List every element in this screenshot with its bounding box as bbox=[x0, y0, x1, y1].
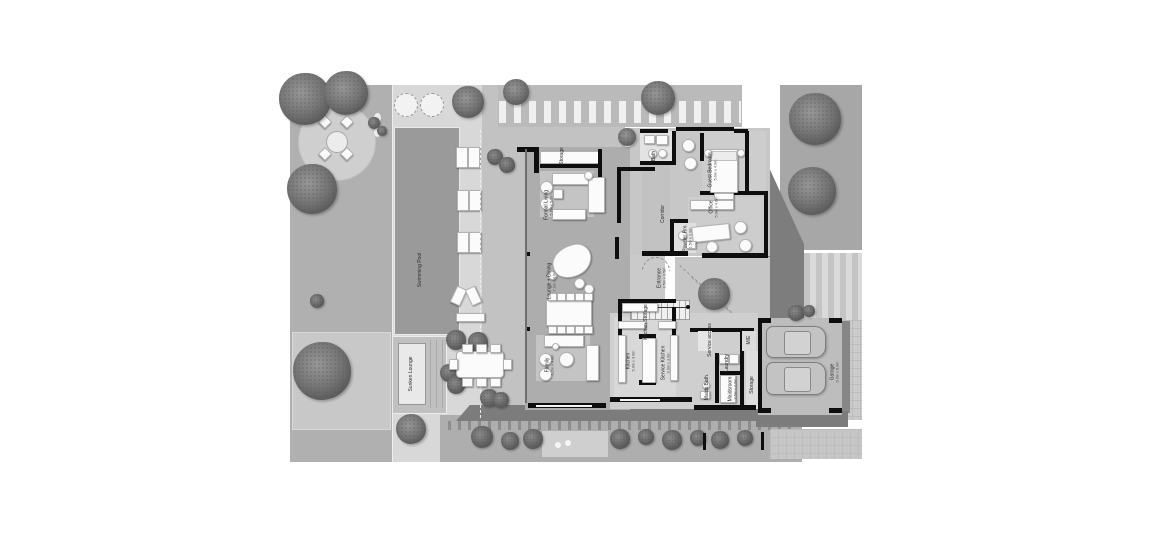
pouf bbox=[739, 239, 752, 252]
wall bbox=[700, 133, 704, 161]
hedge-bush bbox=[737, 430, 753, 446]
wall bbox=[672, 131, 676, 165]
wall bbox=[764, 195, 768, 257]
service-counter bbox=[658, 321, 676, 329]
gate-post bbox=[761, 432, 764, 450]
wall bbox=[670, 221, 674, 255]
hedge-bush bbox=[501, 432, 519, 450]
armchair bbox=[684, 157, 697, 170]
hedge-bush bbox=[610, 429, 630, 449]
sun-lounger bbox=[457, 190, 469, 211]
dining-chair bbox=[557, 293, 566, 301]
garage-corner bbox=[758, 408, 771, 413]
hedge-bush bbox=[471, 426, 493, 448]
hedge-gap-patch bbox=[542, 431, 608, 457]
tree bbox=[618, 128, 636, 146]
armchair bbox=[682, 139, 695, 152]
column bbox=[526, 327, 530, 331]
bush bbox=[803, 305, 815, 317]
stairs-arrow-dot bbox=[686, 305, 690, 309]
dining-chair bbox=[566, 326, 575, 334]
bush bbox=[493, 392, 509, 408]
flower-dot bbox=[555, 442, 561, 448]
bush bbox=[499, 157, 515, 173]
wall bbox=[640, 129, 668, 133]
dining-chair bbox=[566, 293, 575, 301]
side-table bbox=[552, 343, 559, 350]
storage-shelf bbox=[622, 303, 658, 312]
wall bbox=[758, 318, 762, 410]
hedge-bush bbox=[711, 431, 729, 449]
tree bbox=[452, 86, 484, 118]
swimming-pool bbox=[394, 127, 460, 335]
sink bbox=[658, 149, 667, 158]
tv-unit bbox=[586, 345, 599, 381]
outdoor-chair bbox=[462, 378, 473, 387]
side-table bbox=[553, 189, 563, 199]
wall bbox=[702, 253, 768, 258]
tree bbox=[698, 278, 730, 310]
wall bbox=[745, 131, 749, 195]
bath-tub bbox=[644, 135, 655, 144]
floor-plan: Swimming Pool Sunken Lounge Storage Form… bbox=[290, 85, 862, 462]
hedge-bush bbox=[523, 429, 543, 449]
car-cabin bbox=[784, 331, 810, 355]
wall bbox=[540, 164, 602, 168]
wall bbox=[640, 161, 674, 165]
coffee-table bbox=[559, 352, 574, 367]
car-cabin bbox=[784, 367, 810, 392]
outdoor-chair bbox=[503, 359, 512, 370]
bath-vanity bbox=[656, 135, 668, 145]
sofa bbox=[544, 335, 584, 347]
bush bbox=[788, 305, 804, 321]
outdoor-chair bbox=[490, 344, 501, 353]
kitchen-counter bbox=[618, 321, 646, 329]
dining-chair bbox=[584, 293, 593, 301]
bush bbox=[310, 294, 324, 308]
outdoor-chair bbox=[476, 378, 487, 387]
paving-southeast bbox=[770, 429, 862, 459]
outdoor-dining-table bbox=[456, 351, 504, 378]
deck-table bbox=[394, 93, 418, 117]
kitchen-island bbox=[642, 338, 656, 383]
pool-storage-shelf bbox=[540, 151, 600, 164]
bush bbox=[377, 126, 387, 136]
flower-dot bbox=[565, 440, 571, 446]
garage-corner bbox=[829, 408, 842, 413]
dining-chair bbox=[575, 326, 584, 334]
tree bbox=[287, 164, 337, 214]
dining-chair bbox=[557, 326, 566, 334]
tree bbox=[396, 414, 426, 444]
sun-lounger bbox=[468, 147, 480, 168]
window-strip bbox=[620, 399, 660, 402]
tree bbox=[641, 81, 675, 115]
car bbox=[766, 362, 826, 395]
outdoor-chair bbox=[490, 378, 501, 387]
desk-chair bbox=[706, 241, 718, 253]
outdoor-chair bbox=[476, 344, 487, 353]
wall bbox=[615, 237, 619, 259]
hedge-bush bbox=[638, 429, 654, 445]
round-table bbox=[584, 171, 593, 180]
gate-post bbox=[703, 433, 706, 450]
nightstand bbox=[737, 149, 745, 157]
wall bbox=[617, 167, 655, 171]
tree bbox=[293, 342, 351, 400]
wall bbox=[694, 405, 756, 410]
tree bbox=[324, 71, 368, 115]
tree bbox=[503, 79, 529, 105]
car bbox=[766, 326, 826, 358]
deck-table bbox=[420, 93, 444, 117]
pergola-slats bbox=[499, 101, 741, 123]
pool-bench bbox=[456, 313, 485, 322]
wall bbox=[642, 251, 688, 256]
outdoor-chair bbox=[449, 359, 458, 370]
dining-table bbox=[546, 300, 592, 326]
wall bbox=[534, 147, 539, 173]
glazing-line bbox=[525, 149, 527, 403]
outdoor-chair bbox=[462, 344, 473, 353]
washer bbox=[729, 354, 739, 364]
sun-lounger bbox=[457, 232, 469, 253]
dining-chair bbox=[548, 326, 557, 334]
chaise bbox=[588, 177, 605, 213]
wall bbox=[676, 127, 734, 131]
column bbox=[526, 252, 530, 256]
pouf bbox=[734, 221, 747, 234]
tree bbox=[788, 167, 836, 215]
sofa bbox=[552, 209, 586, 220]
dining-chair bbox=[584, 326, 593, 334]
tree bbox=[789, 93, 841, 145]
dining-chair bbox=[575, 293, 584, 301]
garage-corner bbox=[758, 318, 771, 323]
hedge-bush bbox=[662, 430, 682, 450]
window-strip bbox=[536, 405, 592, 408]
wall bbox=[617, 171, 621, 223]
garage-corner bbox=[829, 318, 842, 323]
tree bbox=[279, 73, 331, 125]
sun-lounger bbox=[456, 147, 468, 168]
